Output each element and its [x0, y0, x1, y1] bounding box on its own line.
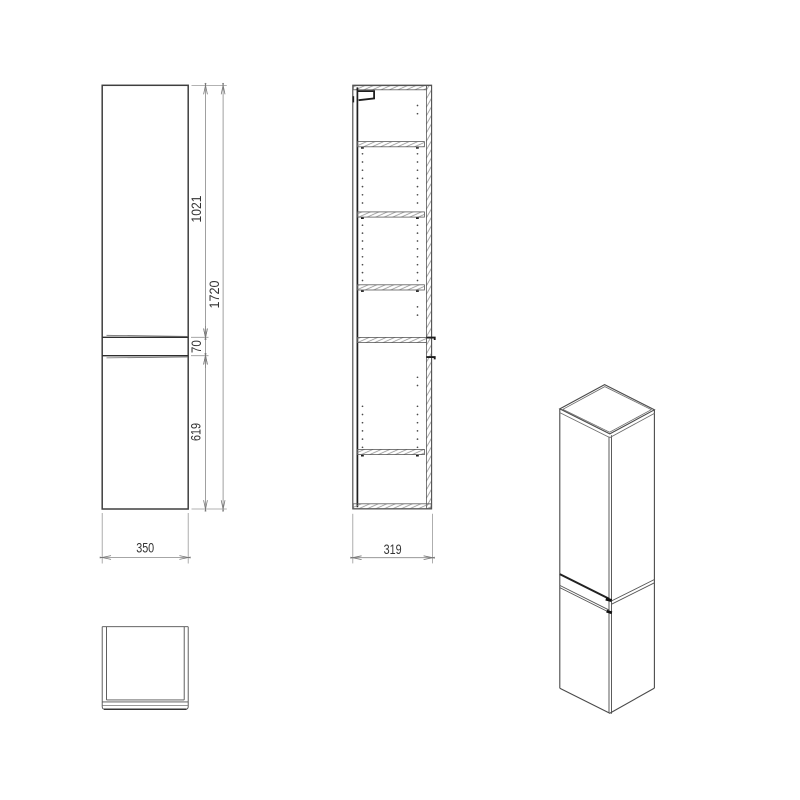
svg-text:319: 319 [384, 542, 402, 557]
svg-text:1720: 1720 [207, 281, 222, 309]
svg-text:1021: 1021 [189, 196, 204, 223]
svg-text:619: 619 [189, 423, 204, 441]
svg-text:70: 70 [189, 340, 204, 353]
svg-text:350: 350 [136, 541, 154, 556]
